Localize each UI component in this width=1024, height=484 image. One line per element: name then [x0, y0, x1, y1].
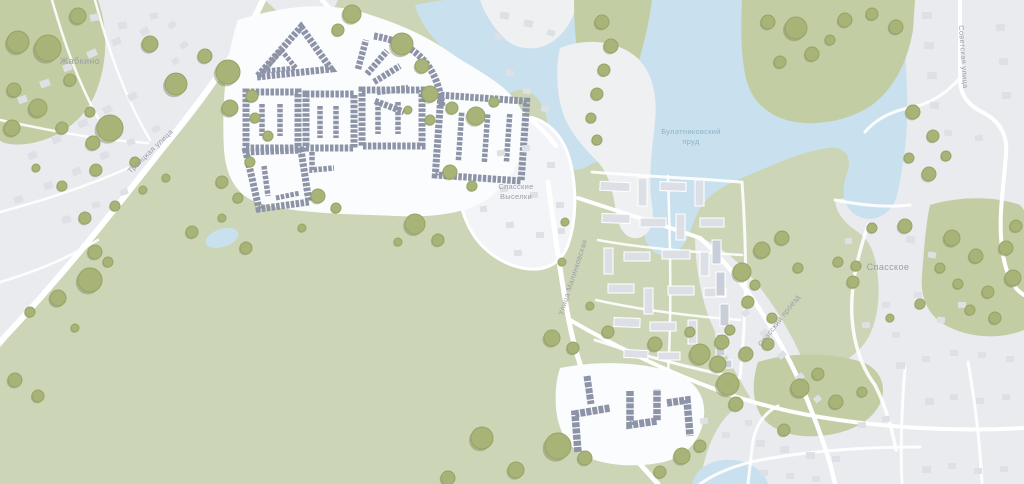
apartment-building [700, 252, 709, 276]
tree-icon [866, 223, 877, 234]
tree-icon [109, 201, 120, 212]
house-footprint [780, 446, 789, 453]
house-footprint [786, 473, 794, 479]
masterplan-map: Жабкино Спасские Выселки Спасское Булатн… [0, 0, 1024, 484]
house-footprint [845, 237, 853, 244]
house-footprint [1006, 356, 1014, 362]
tree-icon [724, 325, 735, 336]
house-footprint [547, 162, 555, 168]
apartment-building [676, 214, 685, 240]
house-footprint [882, 302, 890, 309]
label-pond-2: пруд [682, 137, 700, 146]
house-footprint [858, 422, 866, 429]
house-footprint [958, 302, 966, 308]
label-pond-1: Булатниковский [661, 127, 721, 136]
tree-icon [557, 258, 566, 267]
house-footprint [930, 102, 939, 110]
house-footprint [950, 394, 958, 400]
tree-icon [934, 263, 945, 274]
house-footprint [925, 398, 934, 405]
label-spasskie-vyselki-1: Спасские [498, 182, 533, 191]
apartment-building [614, 318, 640, 328]
house-footprint [924, 42, 934, 49]
apartment-building [602, 214, 630, 224]
tree-icon [70, 324, 79, 333]
tree-icon [824, 35, 835, 46]
tree-icon [403, 106, 412, 115]
tree-icon [249, 113, 260, 124]
house-footprint [745, 420, 752, 427]
apartment-building [604, 248, 613, 274]
tree-icon [885, 314, 894, 323]
house-footprint [978, 352, 986, 358]
tree-icon [585, 302, 594, 311]
house-footprint [832, 456, 840, 462]
house-footprint [937, 317, 945, 323]
tree-icon [856, 387, 867, 398]
house-footprint [1002, 92, 1011, 99]
apartment-building [640, 218, 666, 227]
house-footprint [558, 228, 565, 234]
house-footprint [760, 470, 768, 476]
house-footprint [950, 350, 958, 356]
tree-icon [488, 97, 499, 108]
house-footprint [914, 292, 922, 299]
tree-icon [232, 193, 243, 204]
house-footprint [922, 466, 931, 473]
house-footprint [536, 232, 544, 238]
tree-icon [262, 131, 273, 142]
house-footprint [996, 24, 1006, 32]
tree-icon [297, 224, 306, 233]
tree-icon [102, 257, 113, 268]
apartment-building [716, 272, 725, 296]
apartment-building [600, 181, 630, 192]
apartment-building [668, 286, 694, 295]
tree-icon [217, 214, 226, 223]
house-footprint [882, 416, 890, 422]
house-footprint [1002, 394, 1010, 400]
tree-icon [591, 135, 602, 146]
apartment-building [624, 252, 650, 261]
label-spasskie-vyselki-2: Выселки [500, 192, 532, 201]
house-footprint [806, 452, 815, 459]
house-footprint [812, 476, 820, 482]
tree-icon [31, 164, 40, 173]
apartment-building [624, 349, 648, 358]
apartment-building [608, 284, 634, 293]
label-spasskoye: Спасское [867, 262, 910, 272]
house-footprint [494, 33, 503, 40]
house-footprint [948, 463, 956, 469]
apartment-building [650, 322, 676, 331]
apartment-building [658, 352, 680, 360]
house-footprint [922, 356, 930, 362]
tree-icon [792, 263, 803, 274]
apartment-building [660, 182, 686, 192]
house-footprint [514, 250, 522, 257]
apartment-building [662, 250, 690, 259]
house-footprint [480, 205, 488, 212]
apartment-building [700, 218, 724, 227]
apartment-building [712, 240, 721, 264]
house-footprint [927, 72, 937, 80]
tree-icon [393, 238, 402, 247]
house-footprint [892, 332, 900, 338]
tree-icon [903, 153, 914, 164]
tree-icon [424, 115, 435, 126]
apartment-building [644, 288, 653, 314]
tree-icon [84, 107, 95, 118]
house-footprint [756, 440, 765, 447]
house-footprint [975, 135, 983, 142]
tree-icon [940, 151, 951, 162]
tree-icon [850, 261, 861, 272]
tree-icon [330, 203, 341, 214]
tree-icon [466, 181, 477, 192]
tree-icon [24, 307, 35, 318]
tree-icon [914, 299, 925, 310]
tree-icon [560, 218, 569, 227]
tree-icon [138, 186, 147, 195]
house-footprint [1000, 466, 1008, 472]
tree-icon [952, 279, 963, 290]
tree-icon [832, 257, 843, 268]
apartment-building [720, 304, 729, 326]
house-footprint [896, 362, 905, 369]
tree-icon [585, 113, 596, 124]
house-footprint [722, 432, 731, 439]
house-footprint [556, 202, 564, 208]
house-footprint [700, 417, 709, 424]
tree-icon [244, 157, 255, 168]
house-footprint [976, 398, 984, 404]
apartment-building [695, 180, 704, 206]
house-footprint [522, 145, 530, 152]
map-canvas: Жабкино Спасские Выселки Спасское Булатн… [0, 0, 1024, 484]
tree-icon [964, 305, 975, 316]
apartment-building [638, 178, 647, 206]
house-footprint [922, 12, 932, 19]
tree-icon [161, 174, 170, 183]
label-zhabkino: Жабкино [60, 56, 100, 66]
tree-icon [749, 280, 760, 291]
house-footprint [999, 58, 1008, 65]
house-footprint [974, 468, 982, 474]
tree-icon [56, 181, 67, 192]
house-footprint [506, 222, 515, 229]
house-footprint [862, 321, 871, 328]
tree-icon [684, 327, 695, 338]
